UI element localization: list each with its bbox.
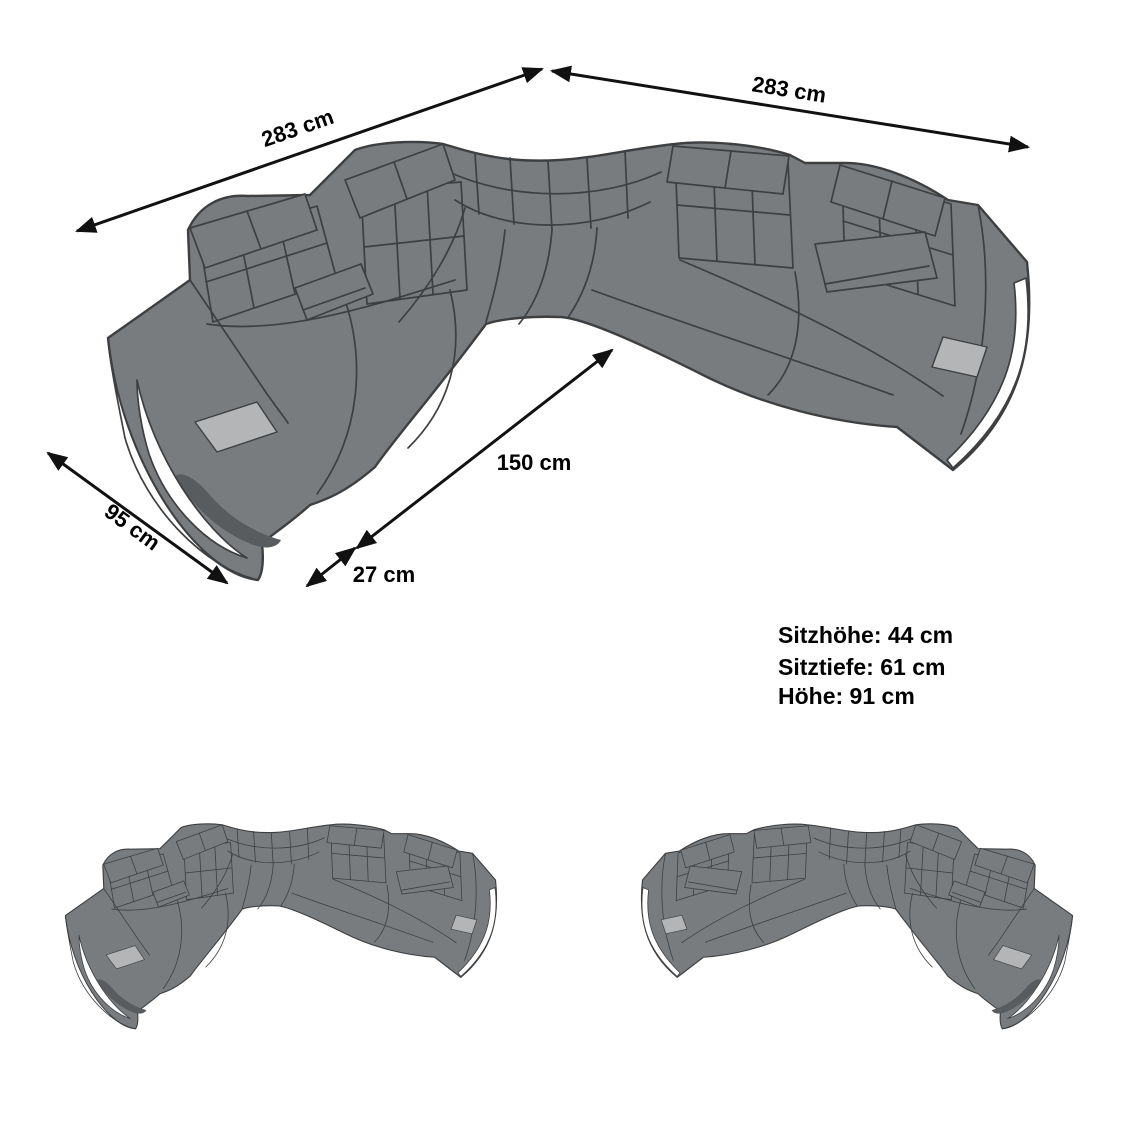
diagram-canvas: 283 cm 283 cm 150 cm 27 cm 95 cm Sitzhöh… — [0, 0, 1134, 1134]
main-sofa — [108, 142, 1029, 580]
variant-sofa-right-corner — [641, 824, 1072, 1029]
spec-line-seat-depth: Sitztiefe: 61 cm — [778, 654, 945, 680]
sofa-dimension-diagram: 283 cm 283 cm 150 cm 27 cm 95 cm Sitzhöh… — [0, 0, 1134, 1134]
spec-line-seat-height: Sitzhöhe: 44 cm — [778, 622, 953, 648]
spec-line-height: Höhe: 91 cm — [778, 683, 915, 709]
spec-text-block: Sitzhöhe: 44 cm Sitztiefe: 61 cm Höhe: 9… — [778, 622, 953, 709]
dimension-arrow-arm-front — [307, 548, 355, 586]
dimension-label-back-right: 283 cm — [750, 71, 828, 107]
dimension-label-arm-front: 27 cm — [353, 562, 415, 587]
dimension-label-side-depth: 95 cm — [100, 498, 165, 555]
variant-sofa-left-corner — [65, 824, 496, 1029]
dimension-label-seat-front: 150 cm — [497, 450, 572, 475]
